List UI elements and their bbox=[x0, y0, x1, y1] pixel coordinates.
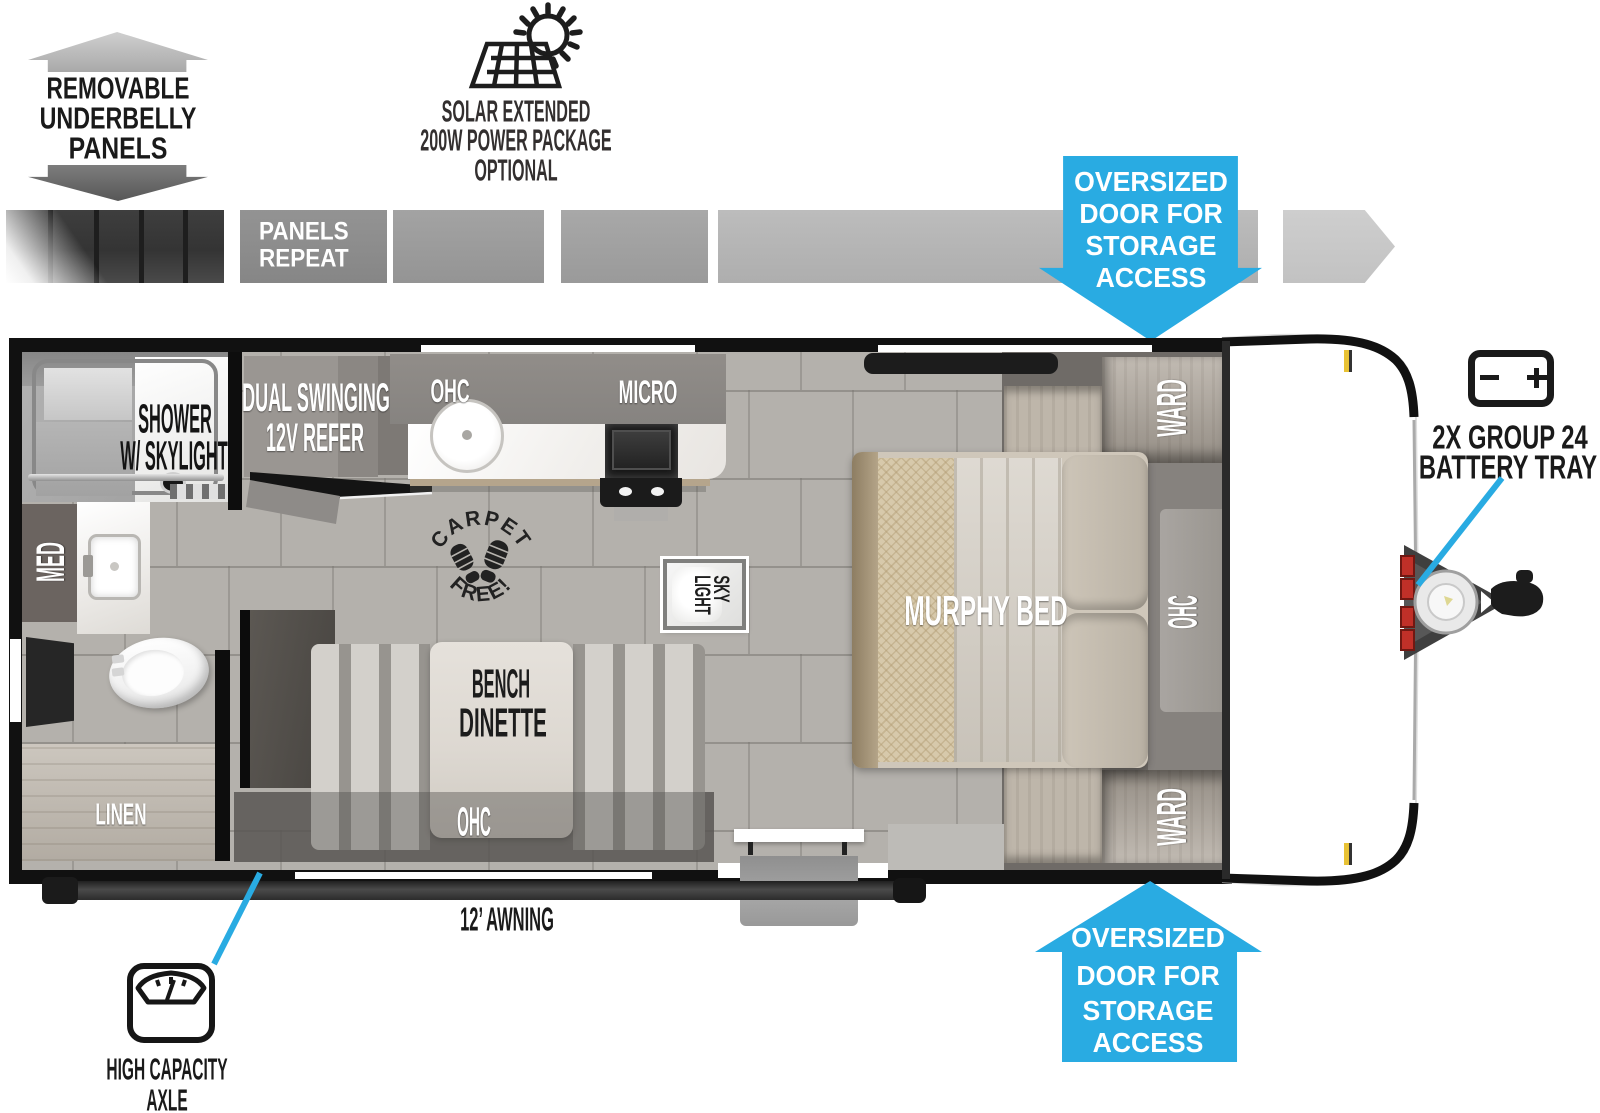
svg-text:CARPET: CARPET bbox=[426, 507, 535, 552]
